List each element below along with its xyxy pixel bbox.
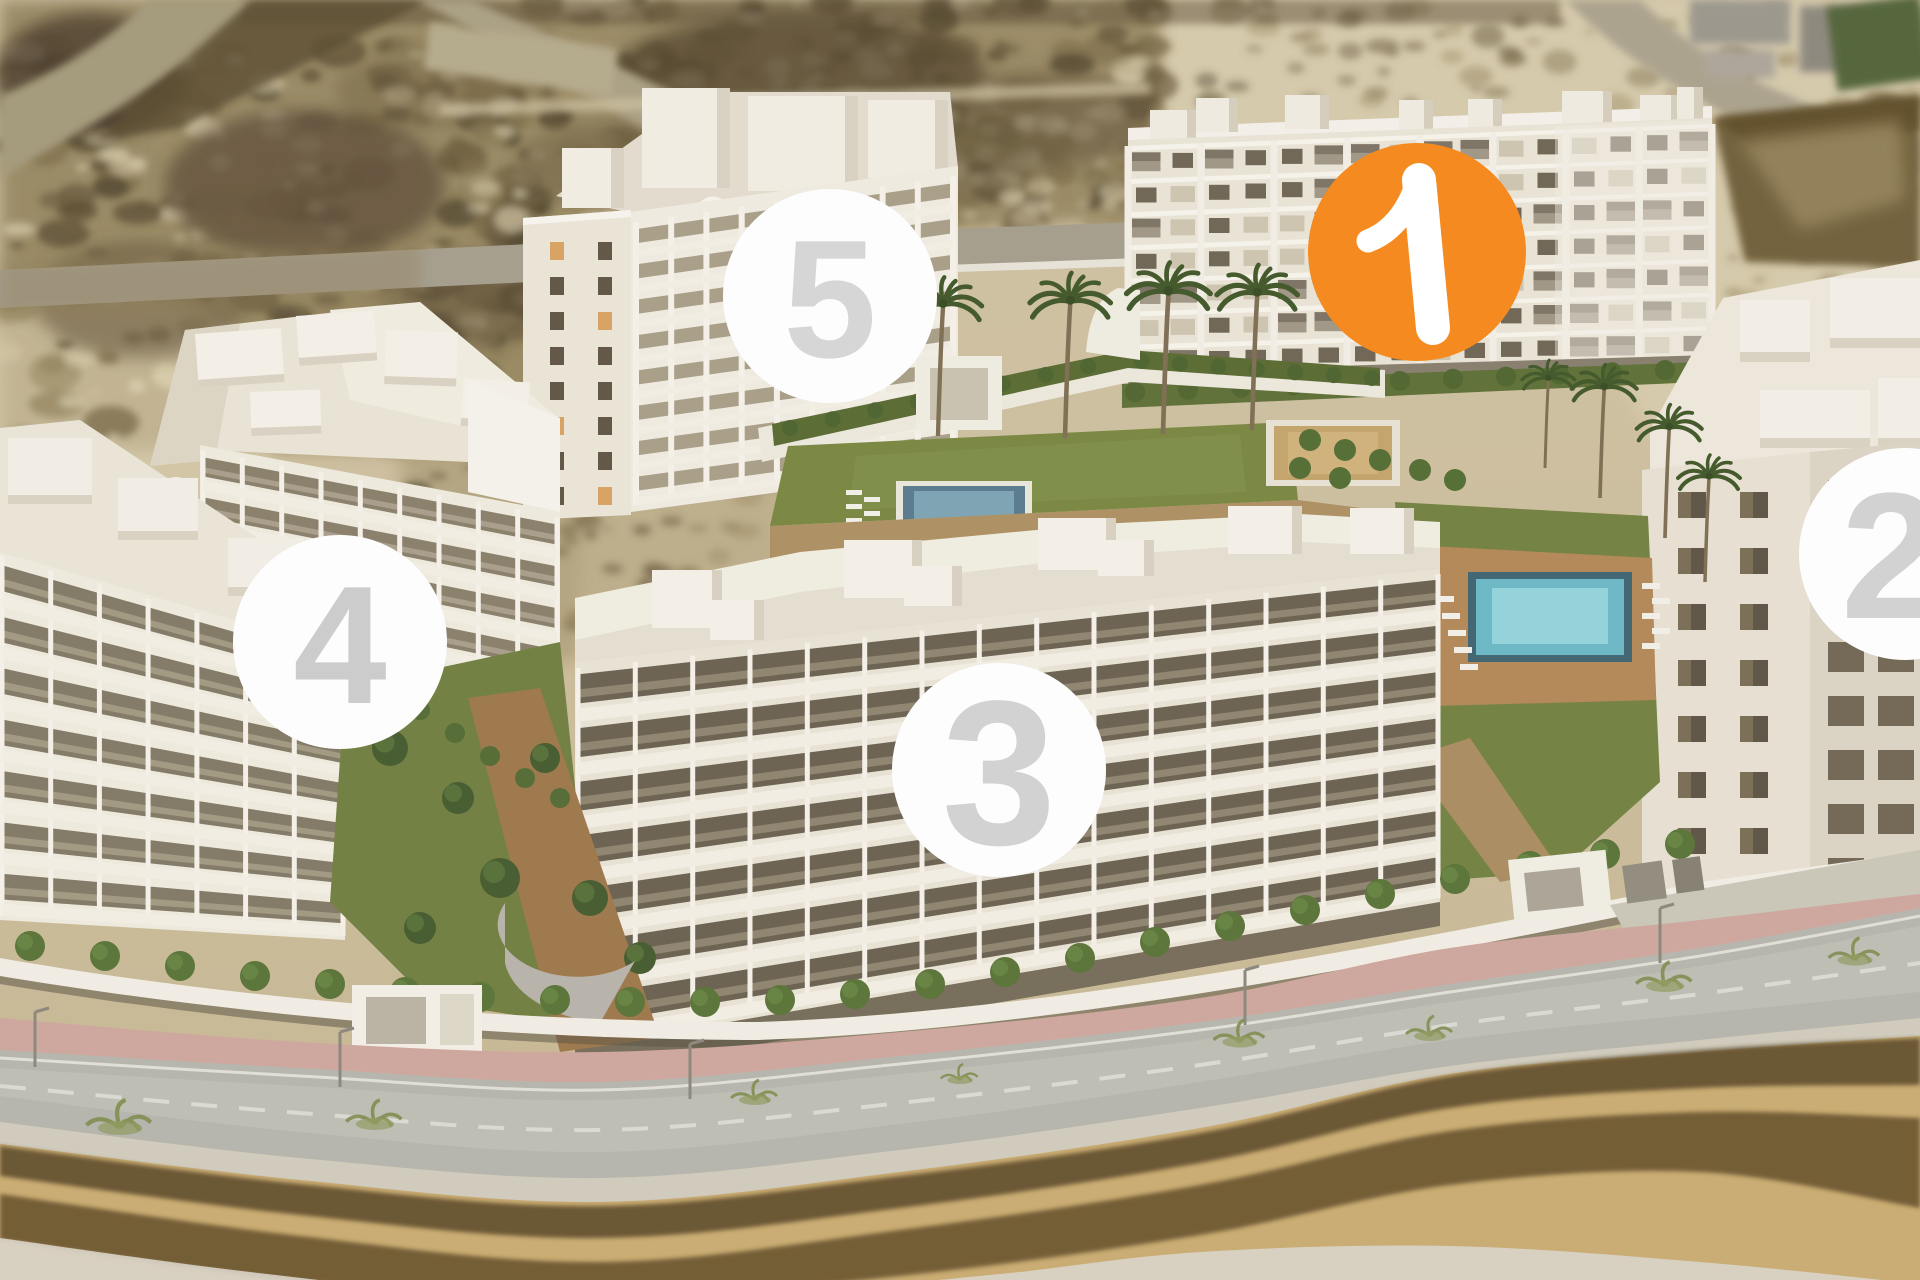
- svg-text:2: 2: [1841, 456, 1920, 657]
- svg-text:3: 3: [942, 658, 1057, 888]
- svg-text:5: 5: [783, 205, 876, 393]
- svg-text:4: 4: [293, 551, 386, 739]
